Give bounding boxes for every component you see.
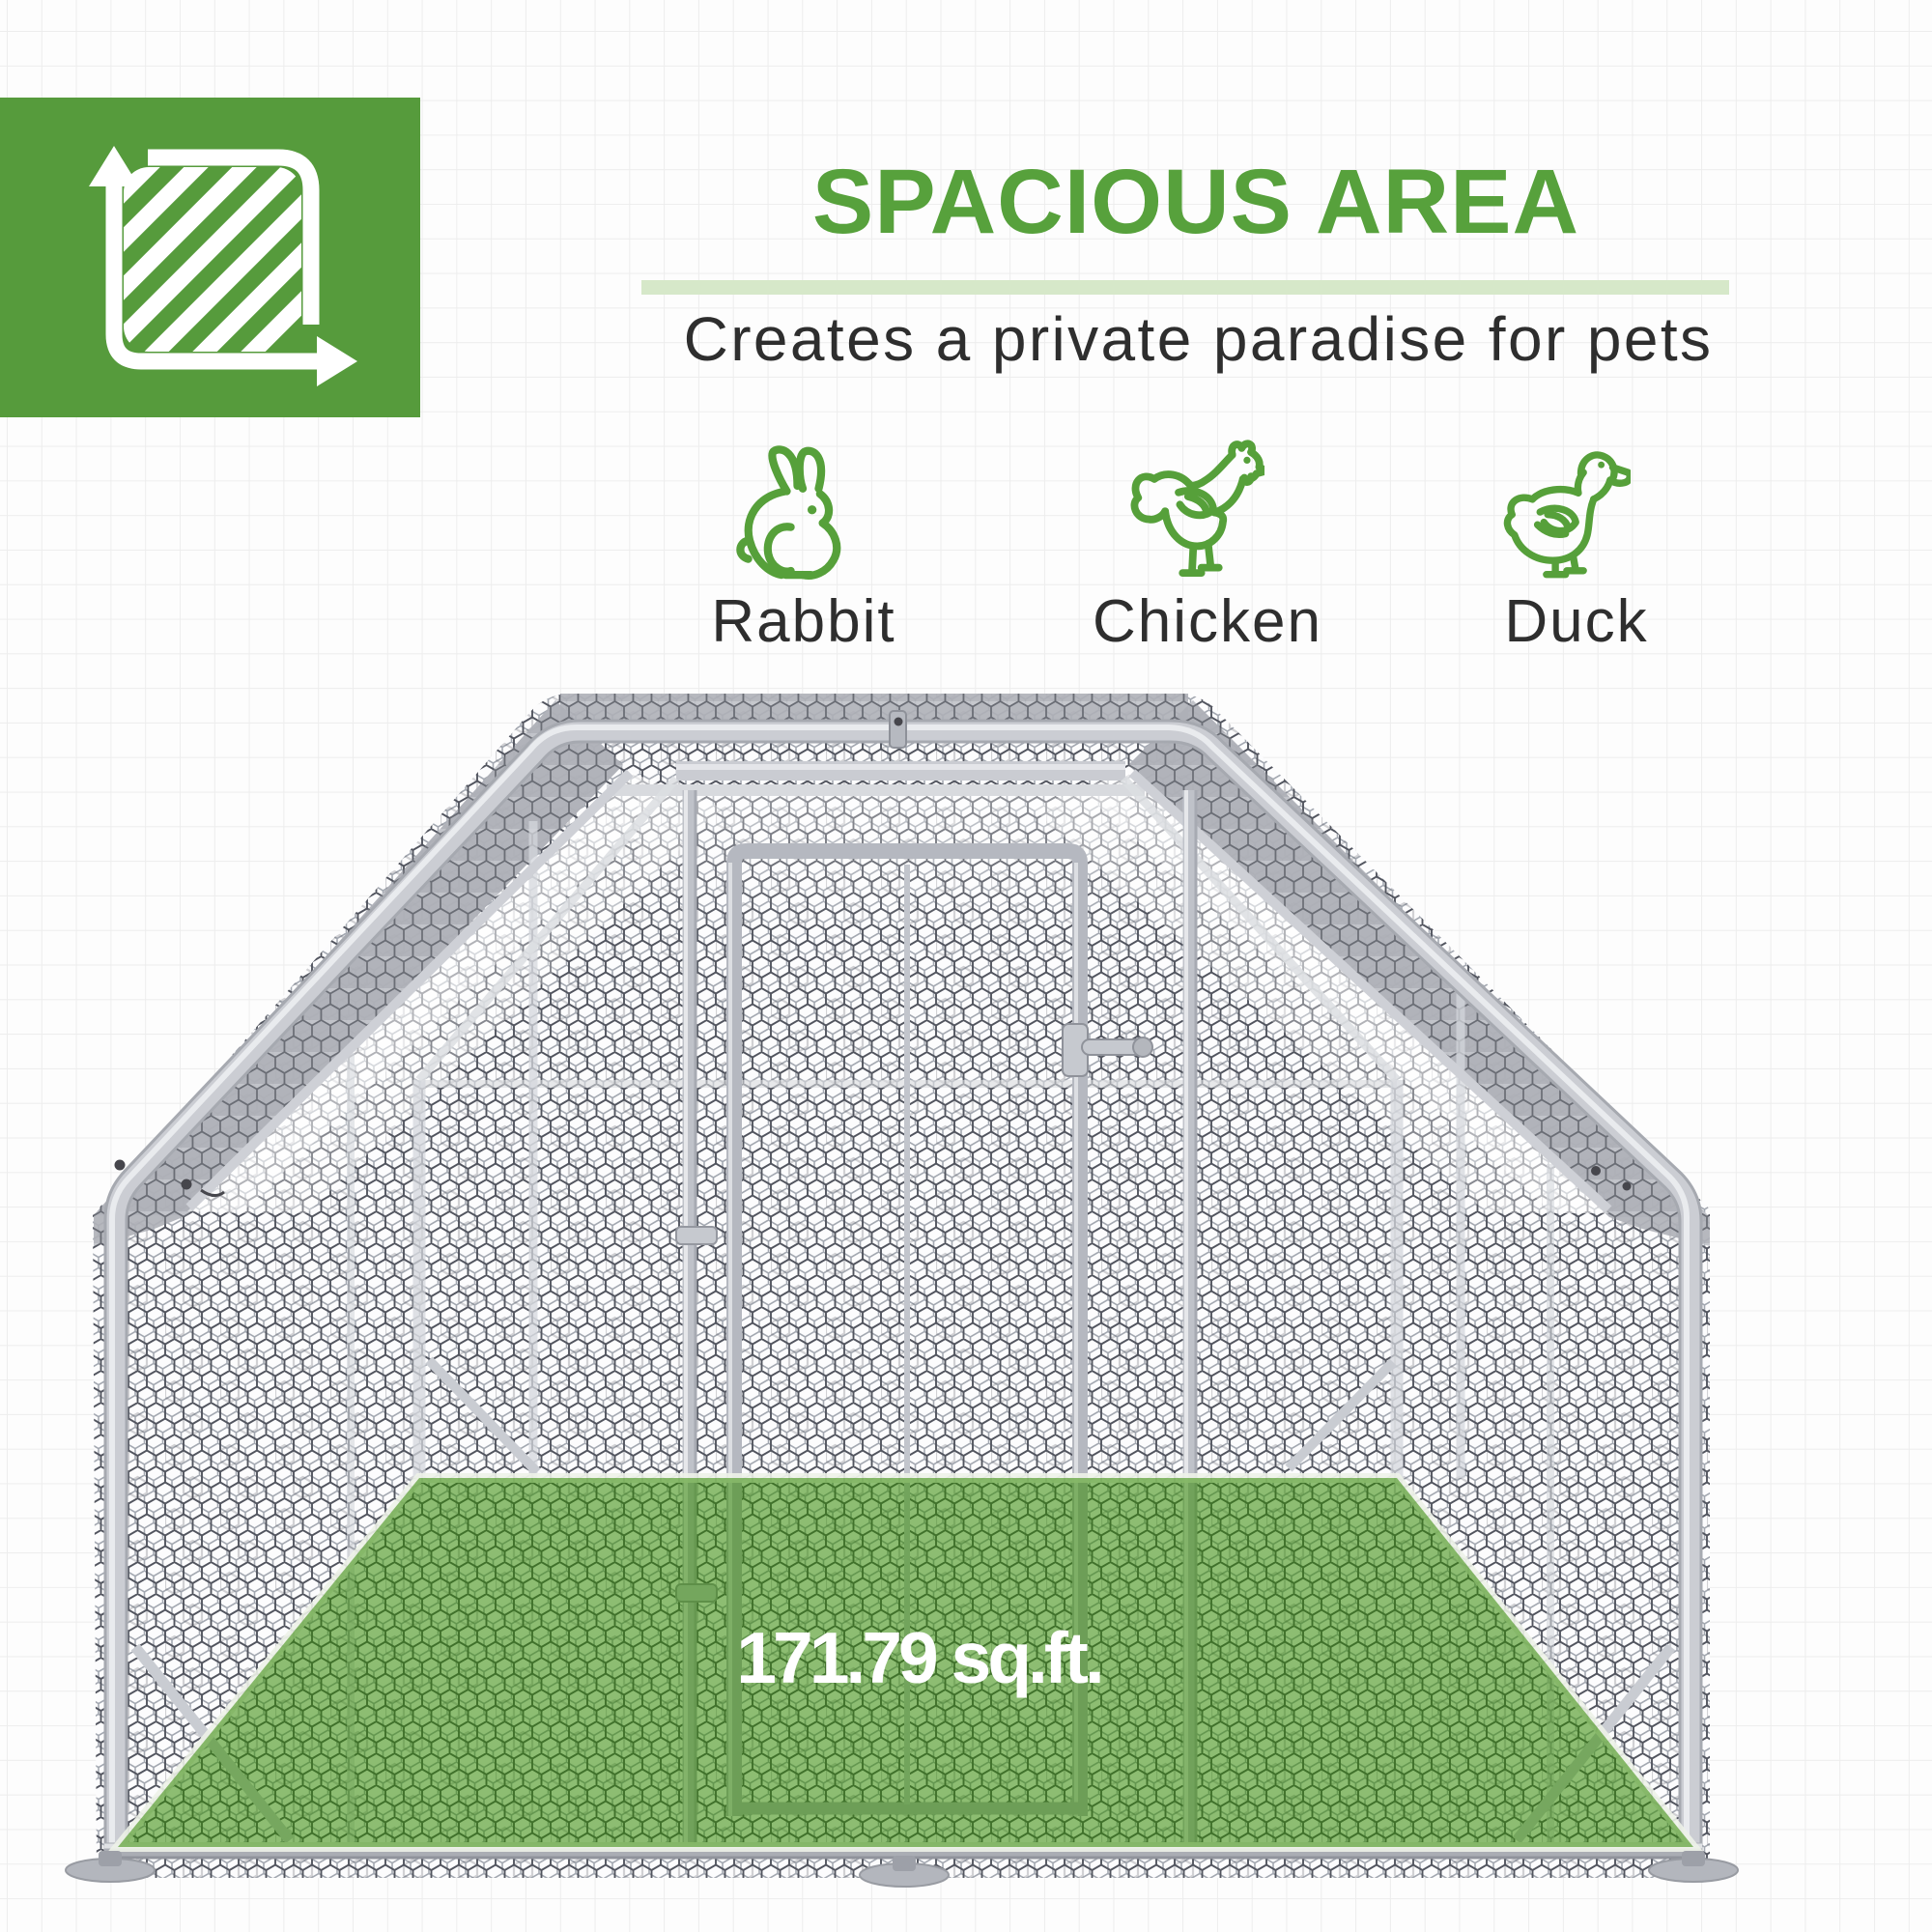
svg-text:171.79 sq.ft.: 171.79 sq.ft. (736, 1617, 1100, 1698)
